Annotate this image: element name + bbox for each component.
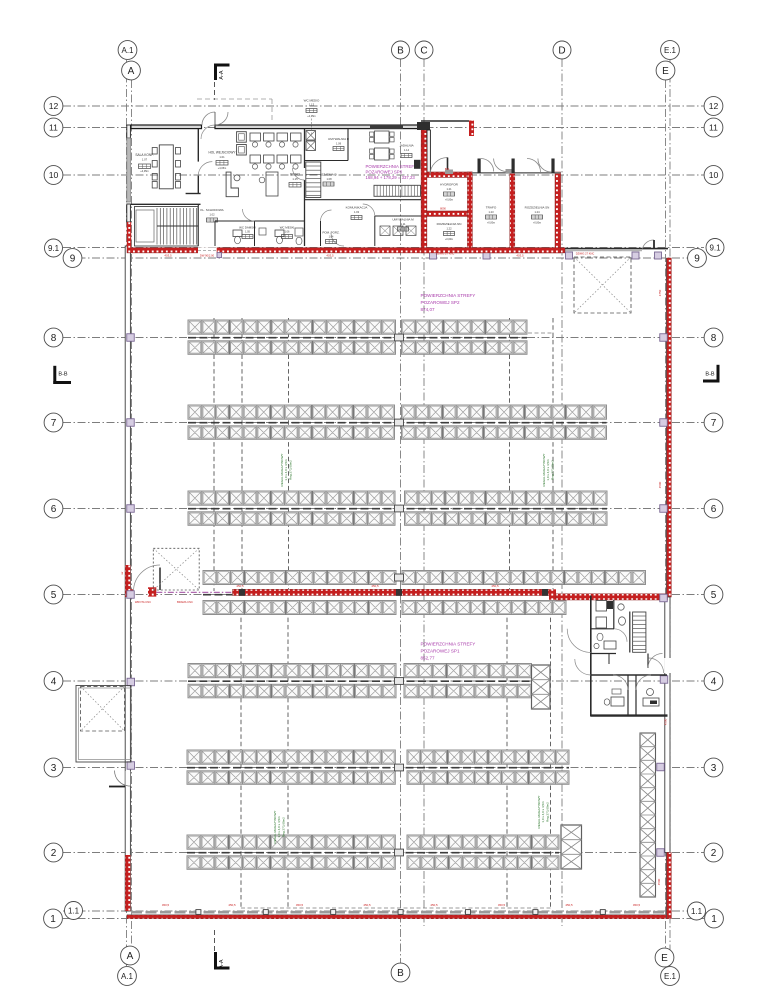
- svg-text:12: 12: [49, 101, 59, 111]
- svg-text:+0,00m: +0,00m: [533, 222, 541, 225]
- svg-text:KL. SCHODOWA: KL. SCHODOWA: [200, 208, 223, 212]
- svg-text:POWIERZCHNIA STREFY: POWIERZCHNIA STREFY: [366, 164, 417, 169]
- svg-text:9: 9: [694, 254, 700, 265]
- svg-text:4890: 4890: [467, 192, 471, 198]
- svg-text:450,5: 450,5: [162, 903, 170, 907]
- svg-text:SALA KONF.: SALA KONF.: [135, 153, 153, 157]
- svg-text:A-A: A-A: [219, 70, 225, 80]
- svg-text:450,5: 450,5: [371, 584, 379, 588]
- svg-text:450,5: 450,5: [430, 903, 438, 907]
- svg-text:450,5: 450,5: [363, 903, 371, 907]
- svg-text:+0,00m: +0,00m: [445, 199, 453, 202]
- svg-text:1.09: 1.09: [336, 142, 342, 146]
- svg-text:4: 4: [711, 677, 717, 688]
- svg-text:WC DAMSKI: WC DAMSKI: [239, 226, 256, 230]
- svg-text:7: 7: [711, 418, 717, 429]
- svg-text:8090: 8090: [440, 207, 446, 211]
- svg-text:1: 1: [711, 914, 717, 925]
- svg-text:6: 6: [711, 504, 717, 515]
- svg-text:+4,05m: +4,05m: [140, 170, 148, 173]
- svg-text:1.02: 1.02: [209, 213, 215, 217]
- svg-text:2: 2: [711, 848, 717, 859]
- svg-text:1.08: 1.08: [326, 177, 332, 181]
- svg-text:852,77: 852,77: [421, 656, 435, 661]
- svg-text:4500: 4500: [658, 481, 662, 488]
- svg-text:4890: 4890: [509, 192, 513, 198]
- svg-text:1.1: 1.1: [68, 906, 80, 915]
- svg-text:ROZDZIELNIA NN: ROZDZIELNIA NN: [437, 222, 462, 226]
- svg-text:POZAROWEJ SP1: POZAROWEJ SP1: [421, 649, 460, 654]
- svg-text:POWIERZCHNIA STREFY: POWIERZCHNIA STREFY: [421, 642, 476, 647]
- svg-text:Reg 273,60m2: Reg 273,60m2: [545, 802, 549, 822]
- svg-text:7: 7: [51, 418, 57, 429]
- svg-text:wr: wr: [120, 571, 124, 574]
- svg-text:C: C: [420, 46, 427, 57]
- svg-text:1.11: 1.11: [401, 222, 406, 226]
- svg-text:DZWIG 27 KNC: DZWIG 27 KNC: [436, 252, 455, 256]
- svg-text:1: 1: [50, 914, 56, 925]
- svg-text:POZAROWEJ SP2: POZAROWEJ SP2: [421, 300, 460, 305]
- svg-text:403,5: 403,5: [326, 254, 334, 258]
- svg-text:4520: 4520: [422, 157, 426, 163]
- svg-text:JADALNIA: JADALNIA: [399, 144, 413, 148]
- svg-text:POWIERZCHNIA STREFY: POWIERZCHNIA STREFY: [421, 293, 476, 298]
- svg-text:450,5: 450,5: [236, 584, 244, 588]
- svg-text:1.24: 1.24: [534, 210, 540, 214]
- svg-text:9: 9: [70, 254, 76, 265]
- svg-text:450,5: 450,5: [498, 903, 506, 907]
- svg-text:B-B: B-B: [705, 372, 715, 378]
- svg-text:POM. PORZ.: POM. PORZ.: [322, 231, 339, 235]
- svg-text:1.14: 1.14: [404, 148, 410, 152]
- svg-text:E: E: [662, 66, 669, 77]
- svg-text:UMYWALNIA M: UMYWALNIA M: [392, 218, 414, 222]
- svg-text:1.07: 1.07: [142, 158, 148, 162]
- svg-text:BRAMA CNC: BRAMA CNC: [177, 600, 193, 604]
- svg-text:1.06: 1.06: [285, 231, 290, 234]
- svg-text:450,5: 450,5: [491, 584, 499, 588]
- svg-text:WC MEDIO: WC MEDIO: [304, 99, 320, 103]
- svg-text:890: 890: [445, 167, 450, 171]
- svg-text:1.23: 1.23: [488, 210, 494, 214]
- svg-text:9.1: 9.1: [709, 243, 721, 252]
- svg-text:3: 3: [711, 763, 717, 774]
- svg-text:4750: 4750: [658, 289, 662, 296]
- svg-text:11: 11: [709, 123, 718, 133]
- svg-text:E.1: E.1: [664, 46, 677, 55]
- svg-text:WC MESKI: WC MESKI: [280, 226, 295, 230]
- svg-text:Reg 273,60m2: Reg 273,60m2: [288, 460, 292, 480]
- svg-text:11: 11: [49, 123, 58, 133]
- svg-text:HOL WEJSCIOWY: HOL WEJSCIOWY: [209, 151, 237, 155]
- svg-text:9.1: 9.1: [48, 244, 60, 253]
- svg-text:3: 3: [51, 763, 57, 774]
- svg-text:1.01: 1.01: [219, 155, 225, 159]
- svg-text:1.22: 1.22: [446, 227, 452, 231]
- svg-text:1.1: 1.1: [691, 907, 703, 916]
- svg-text:Reg 273,60m2: Reg 273,60m2: [281, 817, 285, 837]
- svg-text:6: 6: [51, 504, 57, 515]
- svg-text:1.21: 1.21: [446, 187, 452, 191]
- svg-text:KOMUNIKACJA: KOMUNIKACJA: [346, 206, 368, 210]
- svg-text:B: B: [397, 46, 404, 57]
- svg-text:E.1: E.1: [664, 972, 677, 981]
- svg-text:HYDROFOR: HYDROFOR: [440, 183, 458, 187]
- svg-text:5: 5: [711, 590, 717, 601]
- svg-text:450,5: 450,5: [565, 903, 573, 907]
- svg-text:12: 12: [709, 101, 719, 111]
- svg-text:A: A: [127, 951, 134, 962]
- svg-text:DW 90/2.00: DW 90/2.00: [200, 254, 215, 258]
- svg-text:1.03: 1.03: [354, 210, 360, 214]
- svg-text:D: D: [558, 46, 565, 57]
- svg-text:2: 2: [51, 848, 57, 859]
- svg-text:POZAROWEJ SP3: POZAROWEJ SP3: [366, 170, 403, 175]
- svg-text:450,5: 450,5: [633, 903, 641, 907]
- svg-text:+4,05m: +4,05m: [218, 167, 226, 170]
- svg-text:168,94 + 178,29 = 337,23: 168,94 + 178,29 = 337,23: [366, 175, 416, 180]
- svg-text:Reg 273,60m2: Reg 273,60m2: [550, 460, 554, 480]
- svg-text:SZATNIA D: SZATNIA D: [321, 173, 337, 177]
- svg-text:+0,00m: +0,00m: [487, 222, 495, 225]
- svg-text:A-A: A-A: [219, 959, 225, 969]
- svg-text:E: E: [661, 953, 668, 964]
- svg-text:A: A: [128, 66, 135, 77]
- svg-text:+0,00m: +0,00m: [445, 238, 453, 241]
- svg-text:4500: 4500: [664, 718, 668, 725]
- svg-text:450,5: 450,5: [296, 903, 304, 907]
- svg-text:1.05: 1.05: [245, 231, 250, 234]
- svg-text:ROZDZIELNIA SN: ROZDZIELNIA SN: [525, 206, 550, 210]
- svg-text:1.15: 1.15: [292, 177, 298, 181]
- svg-text:1.04: 1.04: [329, 236, 334, 239]
- svg-text:4: 4: [51, 677, 57, 688]
- svg-text:B-B: B-B: [58, 372, 68, 378]
- svg-text:5: 5: [51, 590, 57, 601]
- svg-text:450,5: 450,5: [228, 903, 236, 907]
- svg-text:UMYWALNIA D: UMYWALNIA D: [328, 137, 350, 141]
- svg-text:TRAFO: TRAFO: [486, 206, 497, 210]
- svg-text:8: 8: [711, 333, 717, 344]
- svg-text:A.1: A.1: [121, 46, 134, 55]
- svg-text:8: 8: [51, 333, 57, 344]
- svg-text:4500: 4500: [657, 878, 661, 885]
- svg-text:1.13: 1.13: [309, 103, 315, 107]
- svg-text:A.1: A.1: [121, 972, 134, 981]
- svg-text:10: 10: [49, 170, 59, 180]
- svg-text:BIURO: BIURO: [290, 173, 301, 177]
- svg-text:WROTA CNC: WROTA CNC: [135, 600, 151, 604]
- svg-text:403,5: 403,5: [164, 254, 172, 258]
- svg-text:+4,05m: +4,05m: [307, 115, 315, 118]
- svg-text:DZWIG 27 KNC: DZWIG 27 KNC: [576, 252, 595, 256]
- svg-text:10: 10: [709, 170, 719, 180]
- svg-text:403,5: 403,5: [516, 254, 524, 258]
- svg-text:B: B: [397, 968, 404, 979]
- svg-text:874,07: 874,07: [421, 307, 435, 312]
